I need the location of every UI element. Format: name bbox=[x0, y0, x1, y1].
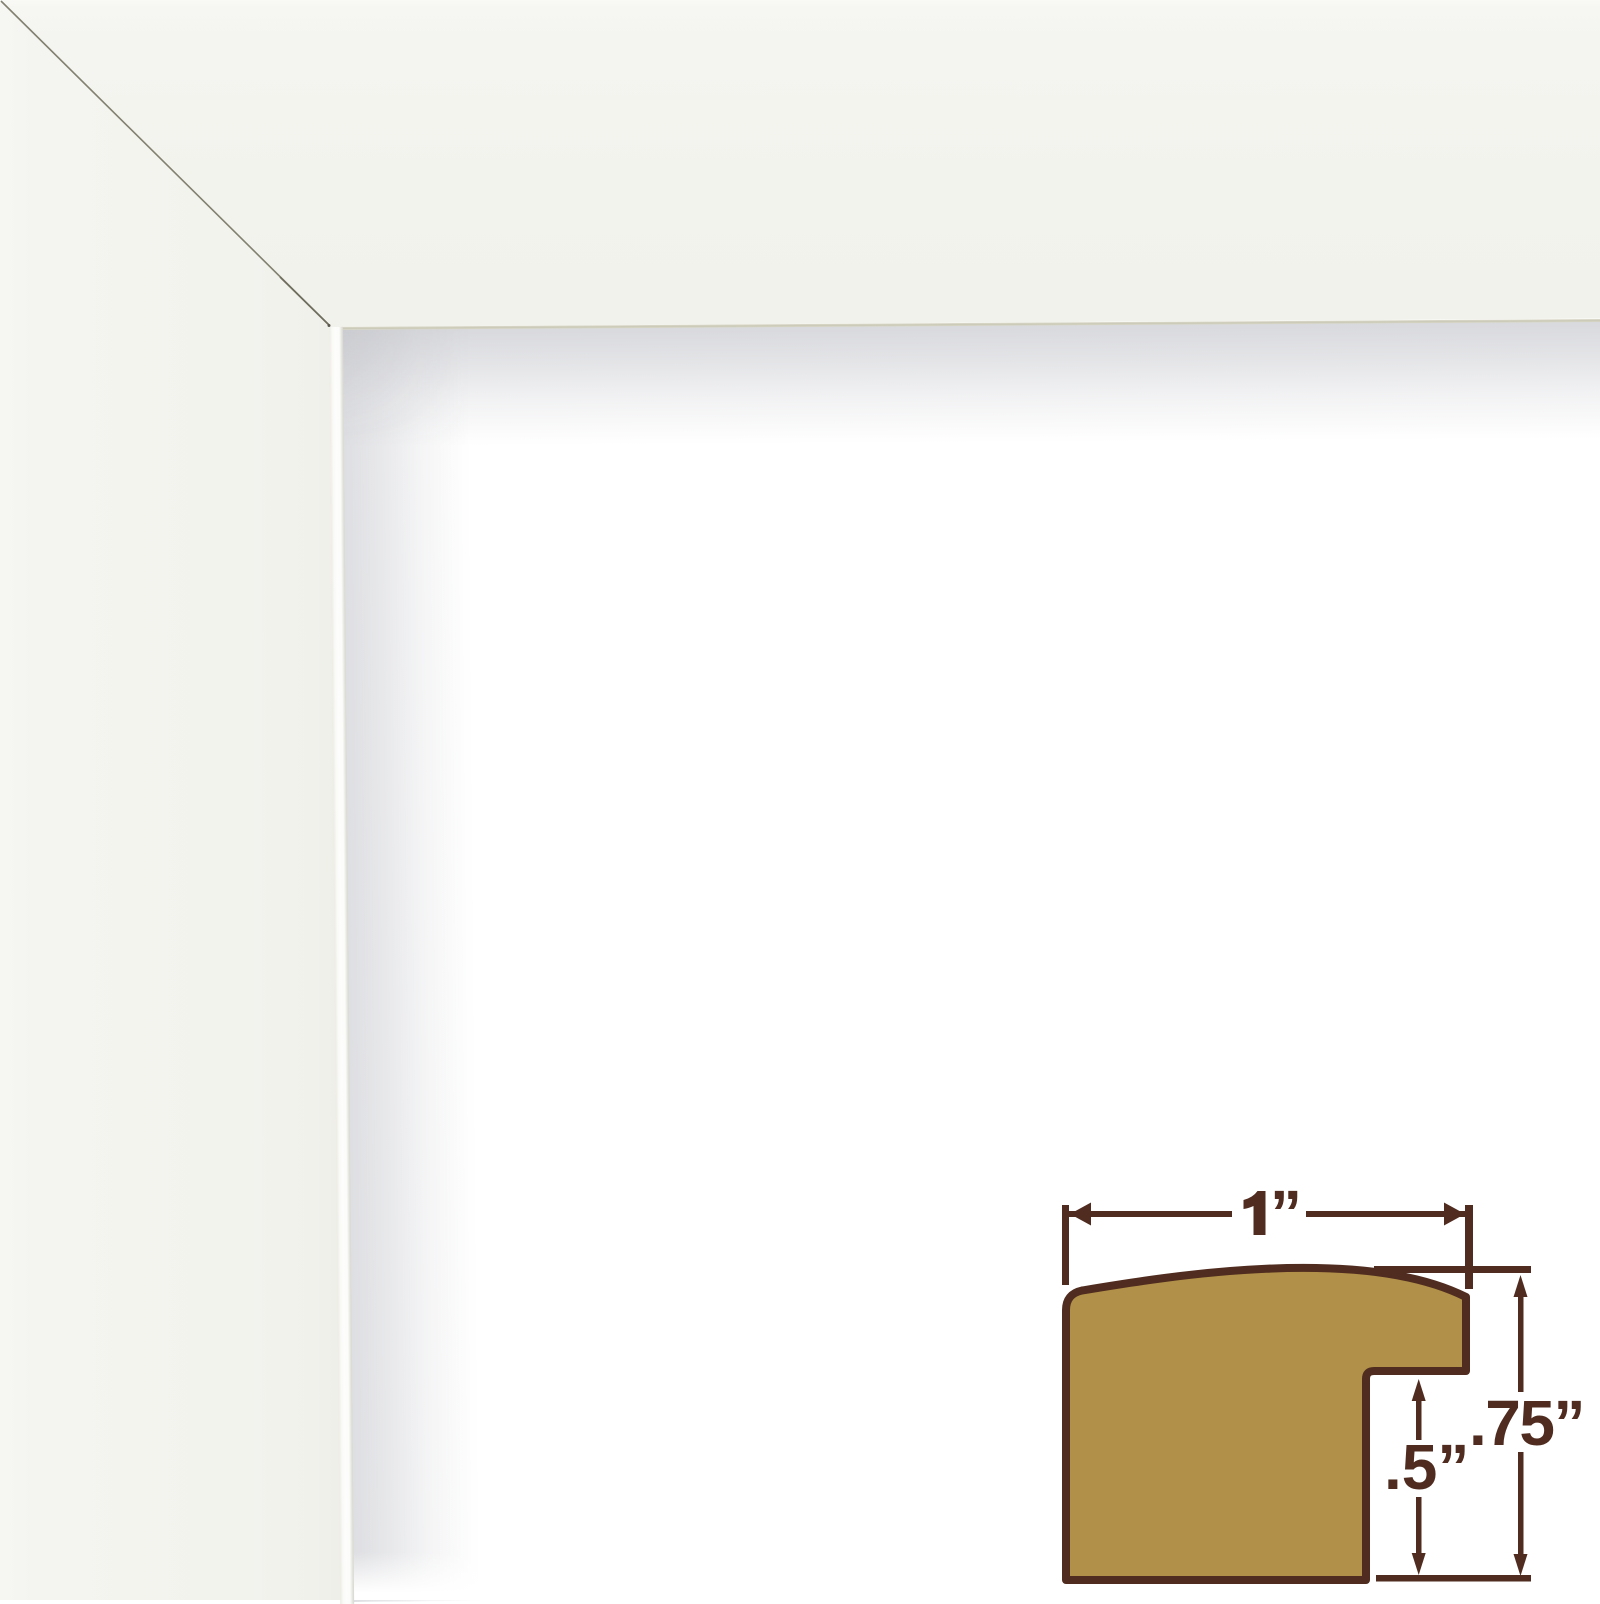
svg-text:.75”: .75” bbox=[1469, 1387, 1584, 1459]
svg-text:.5”: .5” bbox=[1384, 1431, 1469, 1503]
svg-text:”: ” bbox=[1270, 1177, 1302, 1249]
